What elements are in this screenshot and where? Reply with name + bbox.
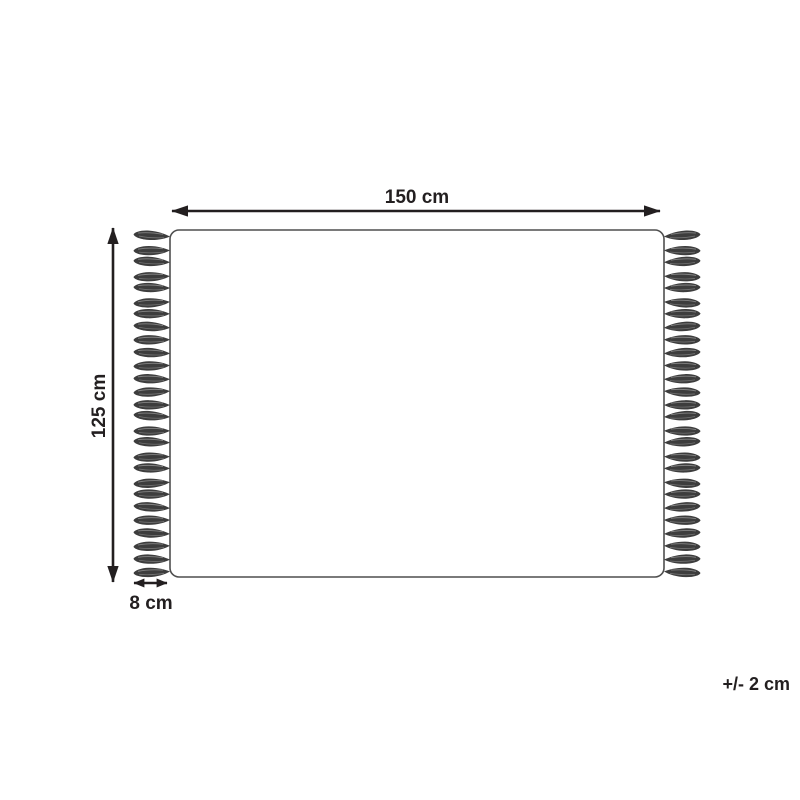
tassel [133, 528, 170, 539]
tassel [133, 283, 170, 293]
tassel [664, 554, 701, 564]
right-fringe [664, 230, 701, 578]
tassel [664, 478, 701, 489]
tassel [664, 309, 701, 318]
tassel [664, 452, 701, 463]
tassel [664, 437, 701, 448]
tassel [133, 335, 170, 345]
tassel [664, 335, 701, 345]
tassel [133, 567, 170, 578]
tassel [664, 321, 701, 332]
tassel [133, 271, 170, 282]
tassel [133, 374, 170, 384]
tassel [133, 230, 170, 241]
rug-outline [170, 230, 664, 577]
height-label: 125 cm [89, 374, 110, 438]
tassel [133, 321, 170, 332]
tassel [133, 554, 170, 564]
tassel [664, 400, 701, 409]
tassel [133, 426, 170, 436]
fringe-label: 8 cm [129, 593, 172, 614]
tassel [133, 463, 170, 473]
tassel [664, 463, 701, 473]
tassel [664, 386, 701, 397]
tassel [664, 410, 701, 421]
tassel [664, 347, 701, 358]
tassel [133, 361, 170, 372]
tassel [133, 410, 170, 421]
tassel [133, 386, 170, 397]
tassel [133, 246, 170, 256]
tassel [133, 347, 170, 358]
tassel [134, 309, 171, 318]
tassel [134, 400, 171, 409]
tassel [133, 541, 170, 552]
tassel [664, 256, 701, 267]
tassel [133, 478, 170, 489]
tassel [664, 515, 701, 525]
tassel [133, 256, 170, 267]
tassel [133, 437, 170, 448]
width-label: 150 cm [385, 187, 449, 208]
tassel [133, 501, 170, 512]
tassel [664, 297, 701, 308]
tassel [134, 489, 171, 498]
tassel [664, 374, 701, 384]
tassel [664, 271, 701, 282]
tassel [133, 515, 170, 525]
tassel [664, 541, 701, 552]
tassel [664, 361, 701, 372]
tassel [664, 246, 701, 256]
tassel [664, 567, 701, 578]
tassel [133, 297, 170, 308]
rug-dimension-diagram: 150 cm 125 cm 8 cm +/- 2 cm [0, 0, 800, 800]
tassel [664, 426, 701, 436]
tassel [664, 528, 701, 539]
tassel [664, 501, 701, 512]
rug-dimension-diagram-page: 150 cm 125 cm 8 cm +/- 2 cm [0, 0, 800, 800]
tassel [664, 283, 701, 293]
tassel [664, 489, 701, 498]
tolerance-label: +/- 2 cm [722, 674, 790, 694]
tassel [664, 230, 701, 241]
tassel [133, 452, 170, 463]
left-fringe [133, 230, 170, 578]
